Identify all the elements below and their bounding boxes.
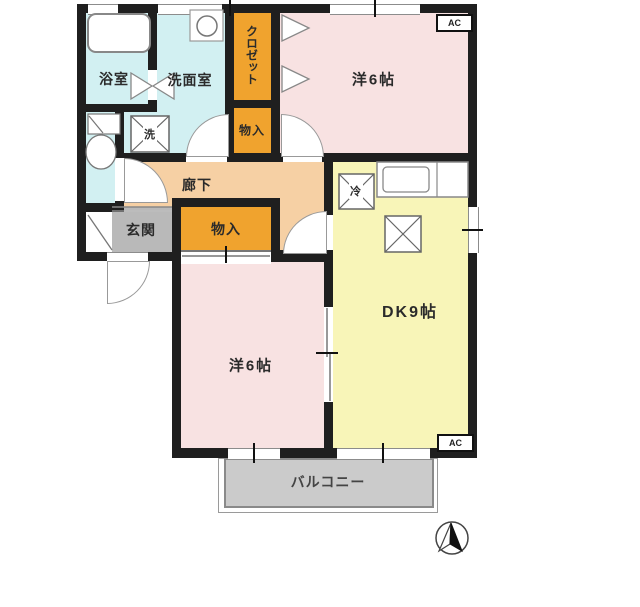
entrance-label: 玄関 <box>126 220 156 240</box>
hallway-label: 廊下 <box>182 175 212 195</box>
closet-bifold-doors-icon <box>282 15 309 92</box>
washing-machine-label: 洗 <box>143 126 157 142</box>
storage-lower-label: 物入 <box>211 219 241 239</box>
ac-unit-top: AC <box>436 14 473 32</box>
western-room-top-label: 洋6帖 <box>352 69 396 90</box>
kitchen-counter-icon <box>377 162 468 197</box>
balcony-label: バルコニー <box>291 472 366 492</box>
refrigerator-label: 冷 <box>349 183 363 199</box>
floor-plan: 浴室 洗面室 クロゼット 物入 洋6帖 廊下 玄関 物入 洋6帖 DK9帖 バル… <box>0 0 640 607</box>
bathtub-icon <box>88 14 150 52</box>
closet-label: クロゼット <box>244 25 261 85</box>
dk-label: DK9帖 <box>382 298 438 322</box>
sliding-door-icon <box>327 308 330 401</box>
entrance-diagonal-line <box>88 215 112 250</box>
ac-unit-bottom: AC <box>437 434 474 452</box>
range-icon <box>385 216 421 252</box>
fixtures-layer <box>0 0 640 607</box>
storage-upper-label: 物入 <box>239 122 265 139</box>
toilet-icon <box>86 114 120 169</box>
north-arrow-icon <box>436 522 468 554</box>
basin-bowl-icon <box>197 16 217 36</box>
washroom-label: 洗面室 <box>168 70 213 90</box>
western-room-bottom-label: 洋6帖 <box>229 355 273 376</box>
bath-label: 浴室 <box>99 69 129 89</box>
